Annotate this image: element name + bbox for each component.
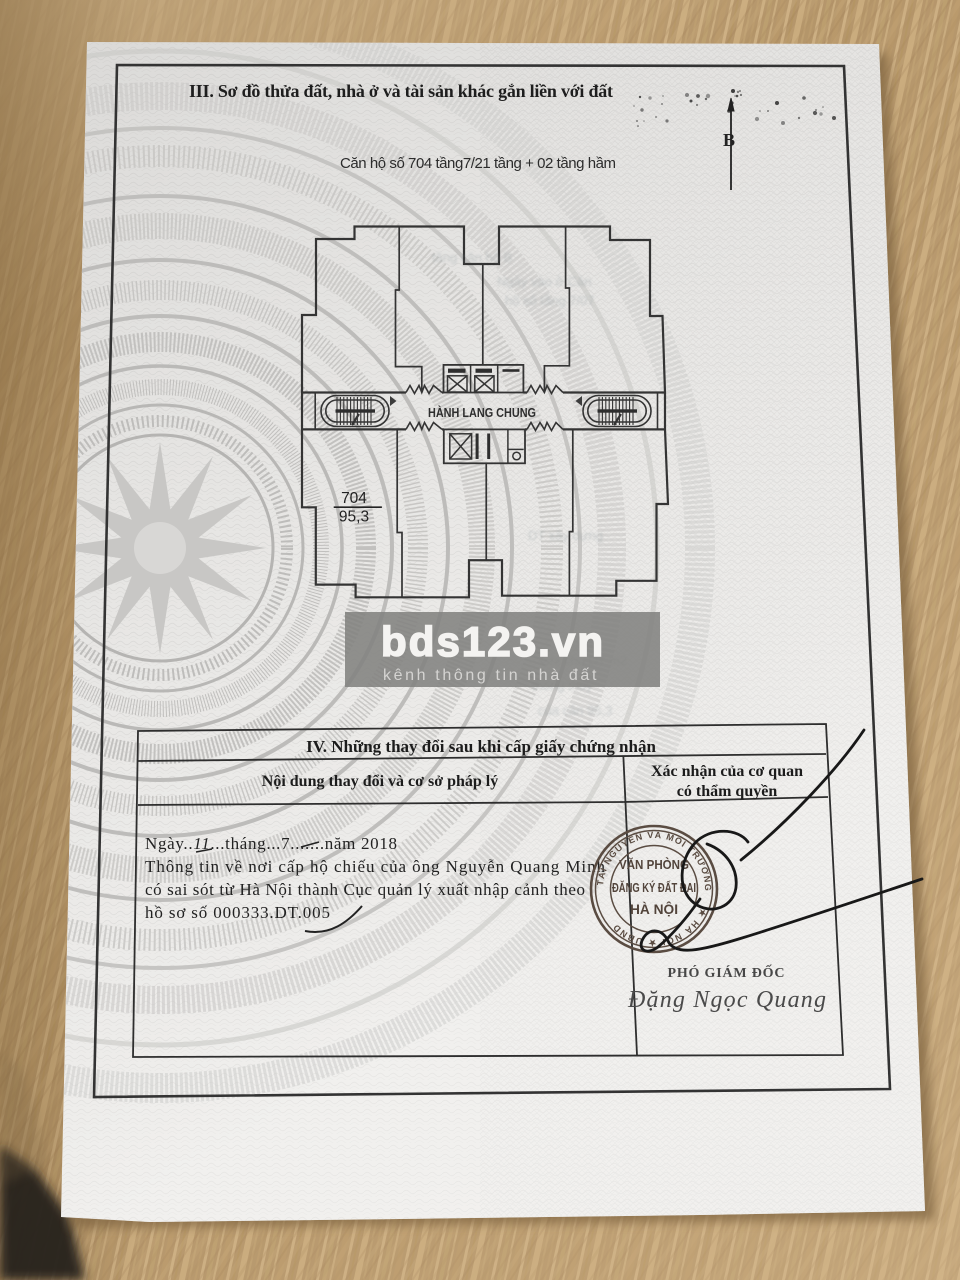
svg-text:VĂN PHÒNG: VĂN PHÒNG	[619, 857, 689, 872]
svg-text:có sai sót từ Hà Nội thành Cục: có sai sót từ Hà Nội thành Cục quản lý x…	[145, 880, 585, 899]
svg-text:HÀNH LANG CHUNG: HÀNH LANG CHUNG	[428, 405, 536, 420]
svg-text:III. Sơ đồ thửa đất, nhà ở và: III. Sơ đồ thửa đất, nhà ở và tài sản kh…	[189, 81, 613, 101]
svg-text:IV. Những thay đổi sau khi cấp: IV. Những thay đổi sau khi cấp giấy chứn…	[306, 737, 656, 756]
svg-text:PHÓ GIÁM ĐỐC: PHÓ GIÁM ĐỐC	[668, 963, 787, 981]
svg-text:95,3: 95,3	[339, 509, 369, 526]
svg-text:của căn 95,3: của căn 95,3	[538, 703, 612, 718]
svg-text:hộ số tầng 7/07: hộ số tầng 7/07	[505, 293, 595, 308]
svg-text:hồ sơ số 000333.DT.005: hồ sơ số 000333.DT.005	[145, 903, 330, 922]
svg-text:DT xây dựng: DT xây dựng	[528, 528, 603, 543]
svg-text:Ngày..11...tháng...7.......năm: Ngày..11...tháng...7.......năm 2018	[145, 834, 397, 853]
svg-text:B: B	[723, 130, 735, 150]
svg-text:tầng căn hộ B: tầng căn hộ B	[432, 250, 512, 265]
svg-text:Đặng Ngọc Quang: Đặng Ngọc Quang	[627, 987, 826, 1013]
svg-text:Xác nhận của cơ quan: Xác nhận của cơ quan	[651, 763, 803, 780]
svg-text:Căn hộ số 704 tầng7/21 tầng +: Căn hộ số 704 tầng7/21 tầng + 02 tầng hầ…	[340, 155, 616, 172]
svg-text:kênh thông tin nhà đất: kênh thông tin nhà đất	[383, 667, 601, 684]
svg-text:bds123.vn: bds123.vn	[381, 618, 603, 665]
svg-text:HÀ NỘI: HÀ NỘI	[630, 902, 678, 917]
svg-text:Nội dung thay đổi và cơ sở phá: Nội dung thay đổi và cơ sở pháp lý	[262, 773, 498, 790]
svg-text:có thẩm quyền: có thẩm quyền	[677, 783, 778, 800]
svg-text:Thông tin về nơi cấp hộ chiếu: Thông tin về nơi cấp hộ chiếu của ông Ng…	[145, 857, 606, 876]
svg-text:704: 704	[341, 490, 367, 507]
svg-text:Ngày vào ở Căn: Ngày vào ở Căn	[497, 274, 592, 289]
